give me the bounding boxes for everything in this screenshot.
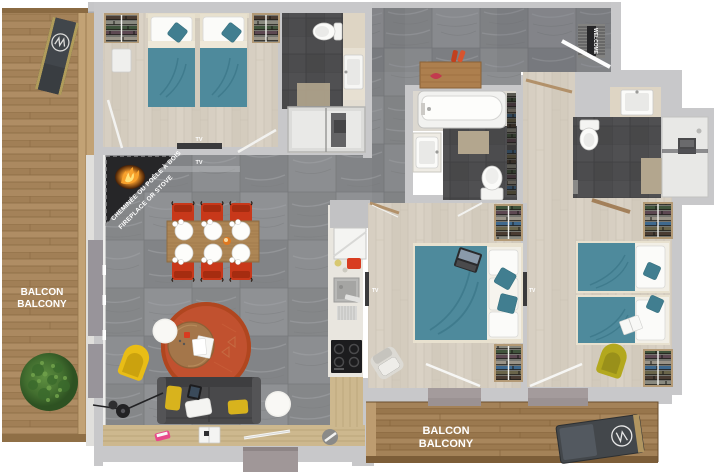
svg-text:BALCONY: BALCONY <box>419 438 474 450</box>
svg-text:BALCON: BALCON <box>21 287 64 298</box>
svg-text:BALCON: BALCON <box>422 425 469 437</box>
svg-text:WELCOME: WELCOME <box>592 28 598 55</box>
svg-text:TV: TV <box>372 288 379 294</box>
svg-text:TV: TV <box>195 160 202 166</box>
svg-text:TV: TV <box>195 137 202 143</box>
svg-text:BALCONY: BALCONY <box>17 299 67 310</box>
svg-text:TV: TV <box>529 288 536 294</box>
